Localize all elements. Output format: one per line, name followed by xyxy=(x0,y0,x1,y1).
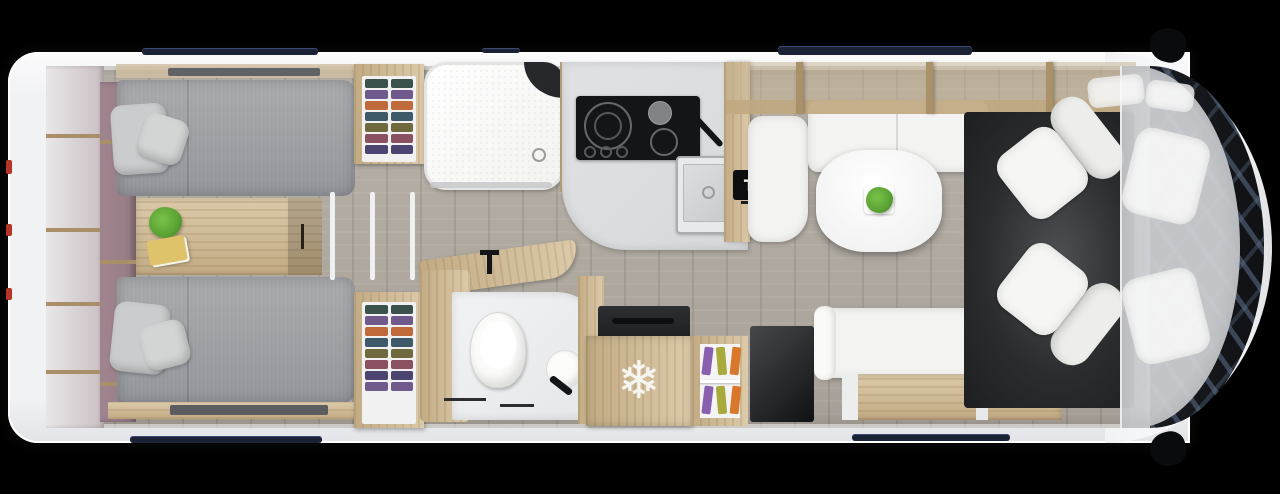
burner-cover xyxy=(648,101,672,125)
entry-cabinet-dark xyxy=(750,326,814,422)
wardrobe-clothes xyxy=(362,76,416,162)
clothes-column xyxy=(365,305,388,421)
rear-shelf xyxy=(46,228,104,232)
mini-clothes-row xyxy=(703,386,740,414)
pocket-door-track xyxy=(410,192,415,280)
floorplan-stage: TV ❄ xyxy=(0,0,1280,494)
wardrobe-clothes xyxy=(362,302,416,424)
rear-shelf xyxy=(46,370,104,374)
island-countertop xyxy=(598,306,690,340)
wardrobe-top xyxy=(354,64,424,164)
rear-shelf xyxy=(46,302,104,306)
trim-top-small xyxy=(482,48,520,53)
bedroom-ceiling-vent xyxy=(168,68,320,76)
slideout-trim-top-dinette xyxy=(778,46,972,55)
mini-wardrobe-interior xyxy=(700,344,740,418)
dresser-handle xyxy=(301,224,304,249)
cab-seat-headrest xyxy=(1087,73,1146,109)
burner-inner-ring xyxy=(594,112,622,140)
shower xyxy=(424,62,564,190)
bed-base-board xyxy=(108,402,360,419)
sofa-bench-bottom xyxy=(814,308,988,378)
clothes-column xyxy=(365,79,388,159)
toilet-lid xyxy=(480,321,516,369)
tail-light xyxy=(6,288,12,300)
tail-light xyxy=(6,160,12,174)
sink-drain xyxy=(702,186,715,199)
towel-bar xyxy=(444,398,486,401)
rear-shelf xyxy=(46,134,104,138)
slideout-trim-top-bedroom xyxy=(142,48,318,55)
mini-shelf xyxy=(700,380,740,383)
slideout-trim-bottom-sofa xyxy=(852,434,1010,441)
control-knob xyxy=(584,146,596,158)
cooktop xyxy=(576,96,700,160)
overhead-divider xyxy=(926,62,933,114)
countertop-handle xyxy=(612,318,674,324)
mini-wardrobe xyxy=(692,336,748,426)
headboard-shelf xyxy=(100,260,136,264)
burner-large xyxy=(584,102,632,150)
pocket-door-track xyxy=(330,192,335,280)
slideout-trim-bottom-bedroom xyxy=(130,436,322,443)
wardrobe-bottom xyxy=(354,292,424,428)
shower-drain xyxy=(532,148,546,162)
mini-clothes-row xyxy=(703,347,740,375)
control-knob xyxy=(600,146,612,158)
control-knob xyxy=(616,146,628,158)
towel-bar xyxy=(500,404,534,407)
refrigerator: ❄ xyxy=(586,336,692,426)
clothes-column xyxy=(391,79,414,159)
dinette-bench-side xyxy=(748,116,808,242)
shower-head-icon xyxy=(524,62,564,98)
shower-glass xyxy=(430,182,552,188)
snowflake-icon: ❄ xyxy=(617,355,661,407)
overhead-divider xyxy=(796,62,803,114)
bathroom-wall-faucet-arm xyxy=(480,250,499,255)
burner-small xyxy=(650,128,678,156)
tail-light xyxy=(6,224,12,236)
bedroom-dresser xyxy=(288,198,322,275)
sofa-base-endcap xyxy=(842,374,858,420)
toilet xyxy=(470,312,526,388)
clothes-column xyxy=(391,305,414,421)
sofa-armrest xyxy=(814,306,836,380)
pocket-door-track xyxy=(370,192,375,280)
bed-base-inset xyxy=(170,405,328,415)
rear-shelf-unit xyxy=(46,66,104,428)
